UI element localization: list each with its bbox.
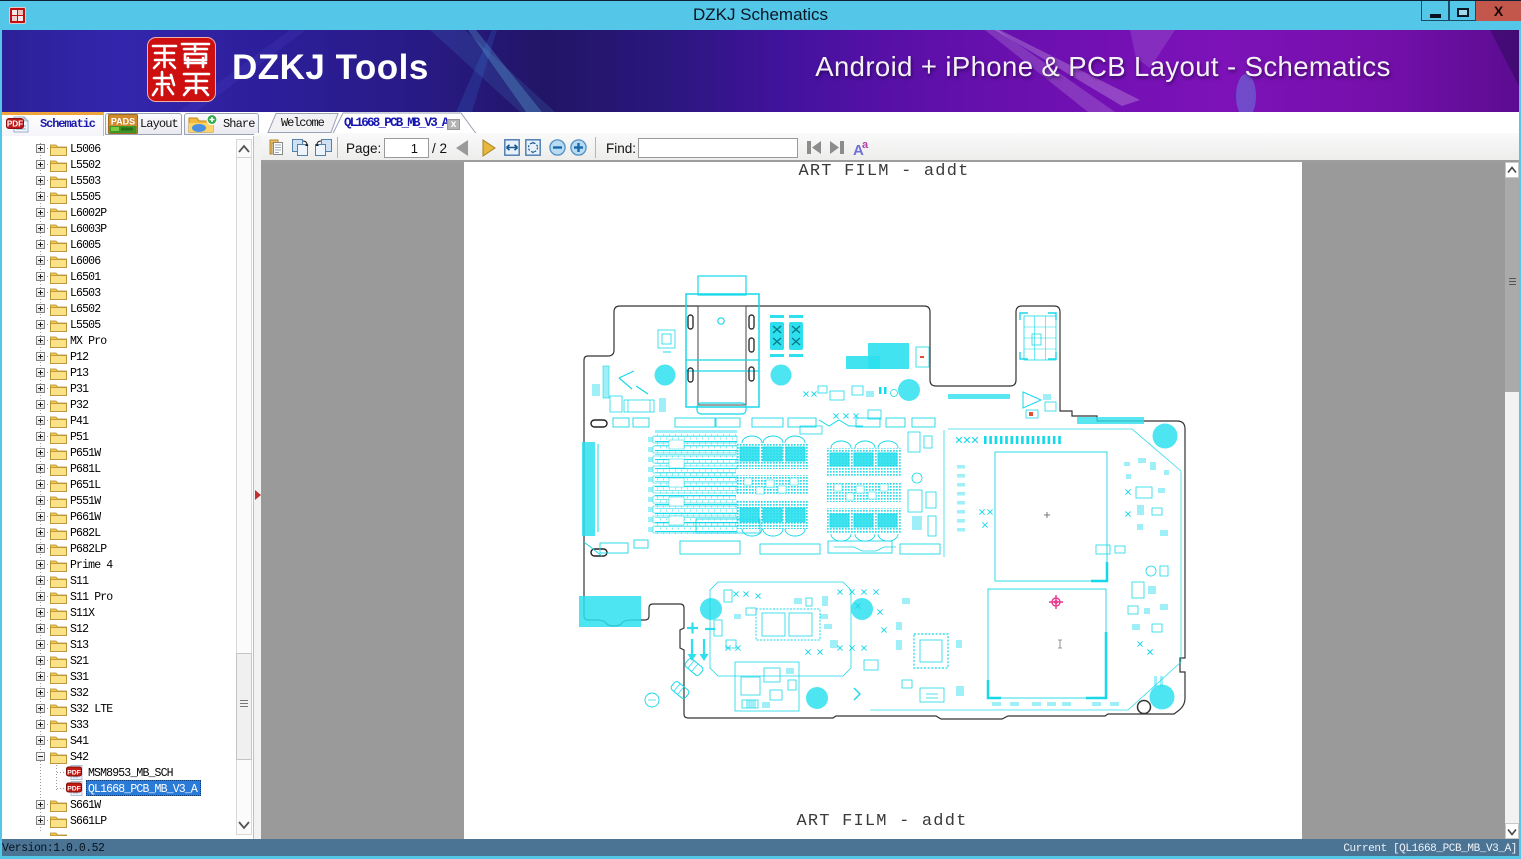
svg-text:ART FILM - addt: ART FILM - addt — [796, 812, 967, 831]
svg-text:PDF: PDF — [67, 769, 81, 776]
svg-text:ART FILM - addt: ART FILM - addt — [798, 162, 969, 181]
svg-text:PDF: PDF — [7, 120, 23, 129]
svg-text:PDF: PDF — [67, 785, 81, 792]
svg-text:PADS: PADS — [111, 117, 135, 127]
svg-text:a: a — [862, 139, 869, 151]
